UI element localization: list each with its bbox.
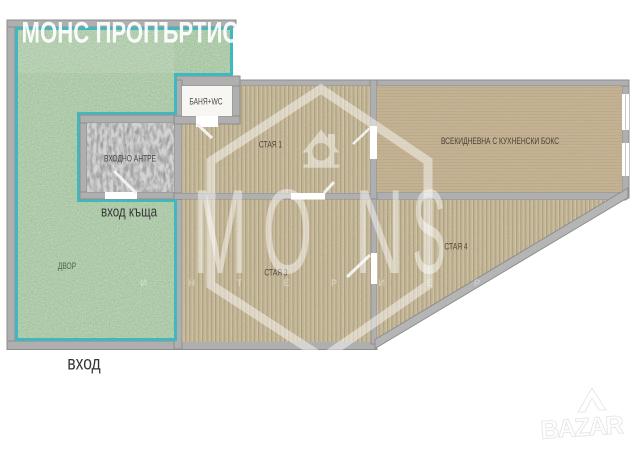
svg-text:ДВОР: ДВОР: [58, 261, 76, 271]
svg-text:ВСЕКИДНЕВНА С КУХНЕНСКИ БОКС: ВСЕКИДНЕВНА С КУХНЕНСКИ БОКС: [441, 136, 559, 146]
svg-text:ВХОДНО АНТРЕ: ВХОДНО АНТРЕ: [104, 154, 156, 164]
svg-text:СТАЯ 4: СТАЯ 4: [444, 242, 468, 252]
svg-text:МОНС ПРОПЪРТИС: МОНС ПРОПЪРТИС: [22, 15, 239, 49]
svg-text:И Н Т Е Р И Е Р: И Н Т Е Р И Е Р: [141, 278, 500, 288]
svg-text:БАНЯ+WC: БАНЯ+WC: [189, 97, 222, 107]
svg-text:вход къща: вход къща: [101, 203, 157, 220]
svg-text:вход: вход: [67, 352, 100, 374]
svg-text:BAZAR: BAZAR: [540, 411, 625, 445]
svg-text:СТАЯ 1: СТАЯ 1: [259, 140, 283, 150]
